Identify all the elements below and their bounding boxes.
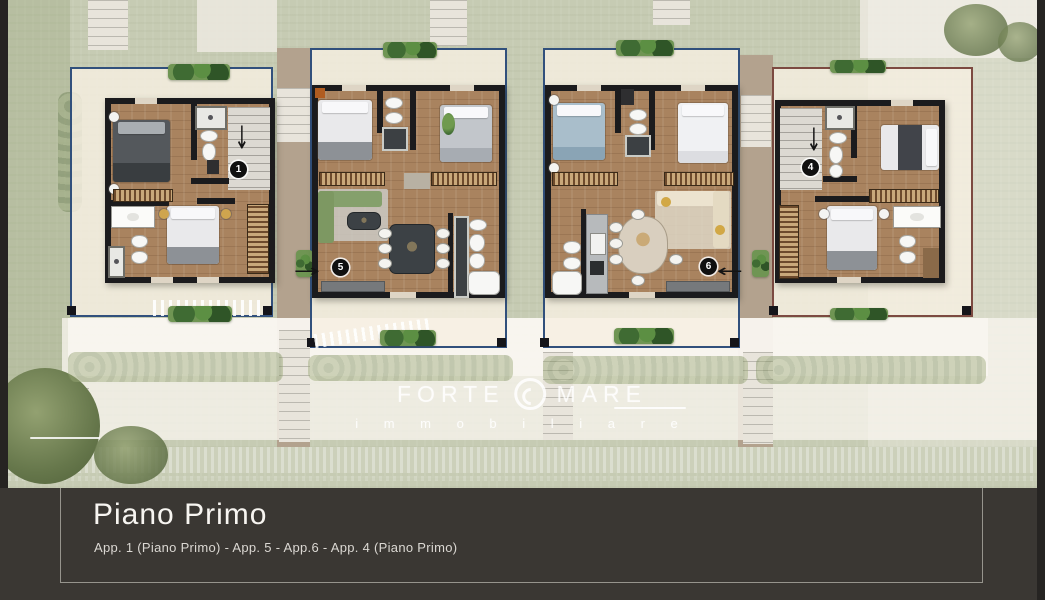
chair — [631, 275, 645, 286]
door-opening — [681, 85, 705, 91]
floor-title: Piano Primo — [93, 498, 267, 532]
page: ↓ 1 — [0, 0, 1045, 600]
planter — [752, 250, 769, 277]
planter — [383, 42, 437, 58]
door-opening — [577, 85, 601, 91]
nightstand — [159, 209, 169, 219]
door-opening — [135, 98, 157, 104]
wardrobe — [665, 173, 733, 185]
brand-row: FORTE MARE — [355, 378, 689, 410]
pillar — [497, 338, 506, 347]
cushion — [715, 225, 725, 235]
planter — [168, 64, 230, 80]
door-opening — [342, 85, 366, 91]
caption-bar: Piano Primo App. 1 (Piano Primo) - App. … — [0, 488, 1037, 600]
interior-wall — [197, 198, 235, 204]
cabinet — [621, 89, 634, 105]
dining-table — [390, 225, 434, 273]
path-top-1 — [197, 0, 277, 52]
chair — [609, 238, 623, 249]
dimension-mark — [30, 437, 100, 439]
planter — [830, 308, 888, 320]
chair — [378, 228, 392, 239]
bidet — [385, 112, 403, 124]
bidet — [469, 253, 485, 269]
apartment-5-plan: → 5 — [312, 85, 505, 298]
wardrobe — [432, 173, 496, 185]
bed — [318, 100, 372, 160]
bidet — [629, 123, 647, 135]
site-plan: ↓ 1 — [8, 0, 1037, 488]
interior-wall — [448, 213, 453, 298]
walkway-edge — [8, 476, 1037, 481]
bathtub — [552, 271, 582, 295]
nightstand — [109, 112, 119, 122]
apartment-4-plan: ↓ 4 — [775, 100, 945, 283]
interior-wall — [815, 196, 873, 202]
arrow-down-icon: ↓ — [234, 123, 249, 155]
nightstand — [819, 209, 829, 219]
interior-wall — [191, 178, 229, 184]
brand-mare: MARE — [557, 381, 647, 408]
cooktop — [590, 261, 604, 275]
sink — [829, 132, 847, 144]
wardrobe — [114, 190, 172, 201]
brand-forte: FORTE — [397, 381, 505, 408]
arrow-left-icon: ← — [717, 263, 743, 281]
path-top-left — [88, 0, 128, 50]
bidet — [563, 257, 581, 270]
chair — [631, 209, 645, 220]
kitchen-sink — [590, 233, 606, 255]
chair — [378, 243, 392, 254]
shower — [825, 106, 855, 130]
door-opening — [197, 277, 219, 283]
dining-table — [619, 217, 667, 273]
cushion — [661, 197, 671, 207]
toilet — [202, 143, 216, 161]
wardrobe — [870, 190, 938, 202]
chair — [436, 258, 450, 269]
door-opening — [390, 292, 416, 298]
chair — [436, 243, 450, 254]
planter — [614, 328, 674, 344]
toilet — [899, 235, 916, 248]
door-opening — [837, 277, 861, 283]
stairs-down-left — [279, 330, 310, 442]
brand-subtitle: i m m o b i l i a r e — [355, 416, 689, 431]
sideboard — [404, 173, 430, 189]
shower — [195, 106, 227, 130]
door-opening — [629, 292, 655, 298]
door-opening — [891, 100, 913, 106]
tree — [998, 22, 1037, 62]
hedge — [756, 356, 986, 384]
chair — [609, 222, 623, 233]
pillar — [962, 306, 971, 315]
fortemare-logo-icon — [515, 378, 547, 410]
bathtub — [468, 271, 500, 295]
unit-number-badge: 5 — [332, 259, 349, 276]
apartments-subtitle: App. 1 (Piano Primo) - App. 5 - App.6 - … — [94, 540, 457, 555]
vanity — [893, 206, 941, 228]
chair — [669, 254, 683, 265]
interior-wall — [377, 85, 383, 133]
wardrobe — [320, 173, 384, 185]
pillar — [730, 338, 739, 347]
tree — [94, 426, 168, 484]
nightstand — [549, 95, 559, 105]
planter — [168, 306, 232, 322]
interior-wall — [410, 85, 416, 150]
path-top-3 — [653, 0, 690, 25]
apartment-6-plan: ← 6 — [545, 85, 738, 298]
bed — [827, 206, 877, 270]
wardrobe — [780, 206, 798, 278]
plant — [442, 113, 455, 135]
corridor-left-steps — [277, 88, 310, 142]
lamp — [315, 88, 325, 98]
apartment-1-plan: ↓ 1 — [105, 98, 275, 283]
bed — [553, 103, 605, 160]
bed — [881, 125, 939, 170]
toilet — [131, 235, 148, 248]
bidet — [131, 251, 148, 264]
tv-cabinet — [322, 282, 384, 291]
shower — [108, 246, 125, 278]
unit-number-badge: 4 — [802, 159, 819, 176]
vanity — [111, 206, 155, 228]
planter — [830, 60, 886, 73]
pillar — [540, 338, 549, 347]
bed — [113, 120, 170, 182]
path-top-2 — [430, 0, 467, 46]
chair — [378, 258, 392, 269]
chair — [609, 254, 623, 265]
chair — [436, 228, 450, 239]
wardrobe — [248, 205, 268, 273]
corridor-right-steps — [741, 95, 771, 147]
planter — [380, 330, 436, 346]
toilet — [829, 146, 843, 164]
nightstand — [879, 209, 889, 219]
door-opening — [450, 85, 474, 91]
pillar — [67, 306, 76, 315]
brand-watermark: FORTE MARE i m m o b i l i a r e — [355, 378, 689, 431]
tv-cabinet — [667, 282, 729, 291]
sink — [385, 97, 403, 109]
caption-border-box: Piano Primo App. 1 (Piano Primo) - App. … — [60, 488, 983, 583]
cabinet — [207, 160, 219, 174]
sink — [629, 109, 647, 121]
unit-number-badge: 6 — [700, 258, 717, 275]
bidet — [829, 164, 843, 178]
arrow-right-icon: → — [294, 263, 320, 281]
interior-wall — [823, 176, 857, 182]
coffee-table — [348, 213, 380, 229]
bidet — [899, 251, 916, 264]
shower — [454, 216, 469, 298]
arrow-down-icon: ↓ — [806, 125, 821, 157]
door-opening — [151, 277, 173, 283]
hedge — [68, 352, 283, 382]
pillar — [769, 306, 778, 315]
cabinet — [923, 248, 939, 278]
bed — [167, 206, 219, 264]
nightstand — [549, 163, 559, 173]
sink — [200, 130, 218, 142]
nightstand — [221, 209, 231, 219]
wardrobe — [553, 173, 617, 185]
unit-number-badge: 1 — [230, 161, 247, 178]
sink — [469, 219, 487, 231]
shower — [382, 127, 408, 151]
bed — [678, 103, 728, 163]
toilet — [563, 241, 581, 254]
toilet — [469, 234, 485, 252]
shower — [625, 135, 651, 157]
planter — [616, 40, 674, 56]
